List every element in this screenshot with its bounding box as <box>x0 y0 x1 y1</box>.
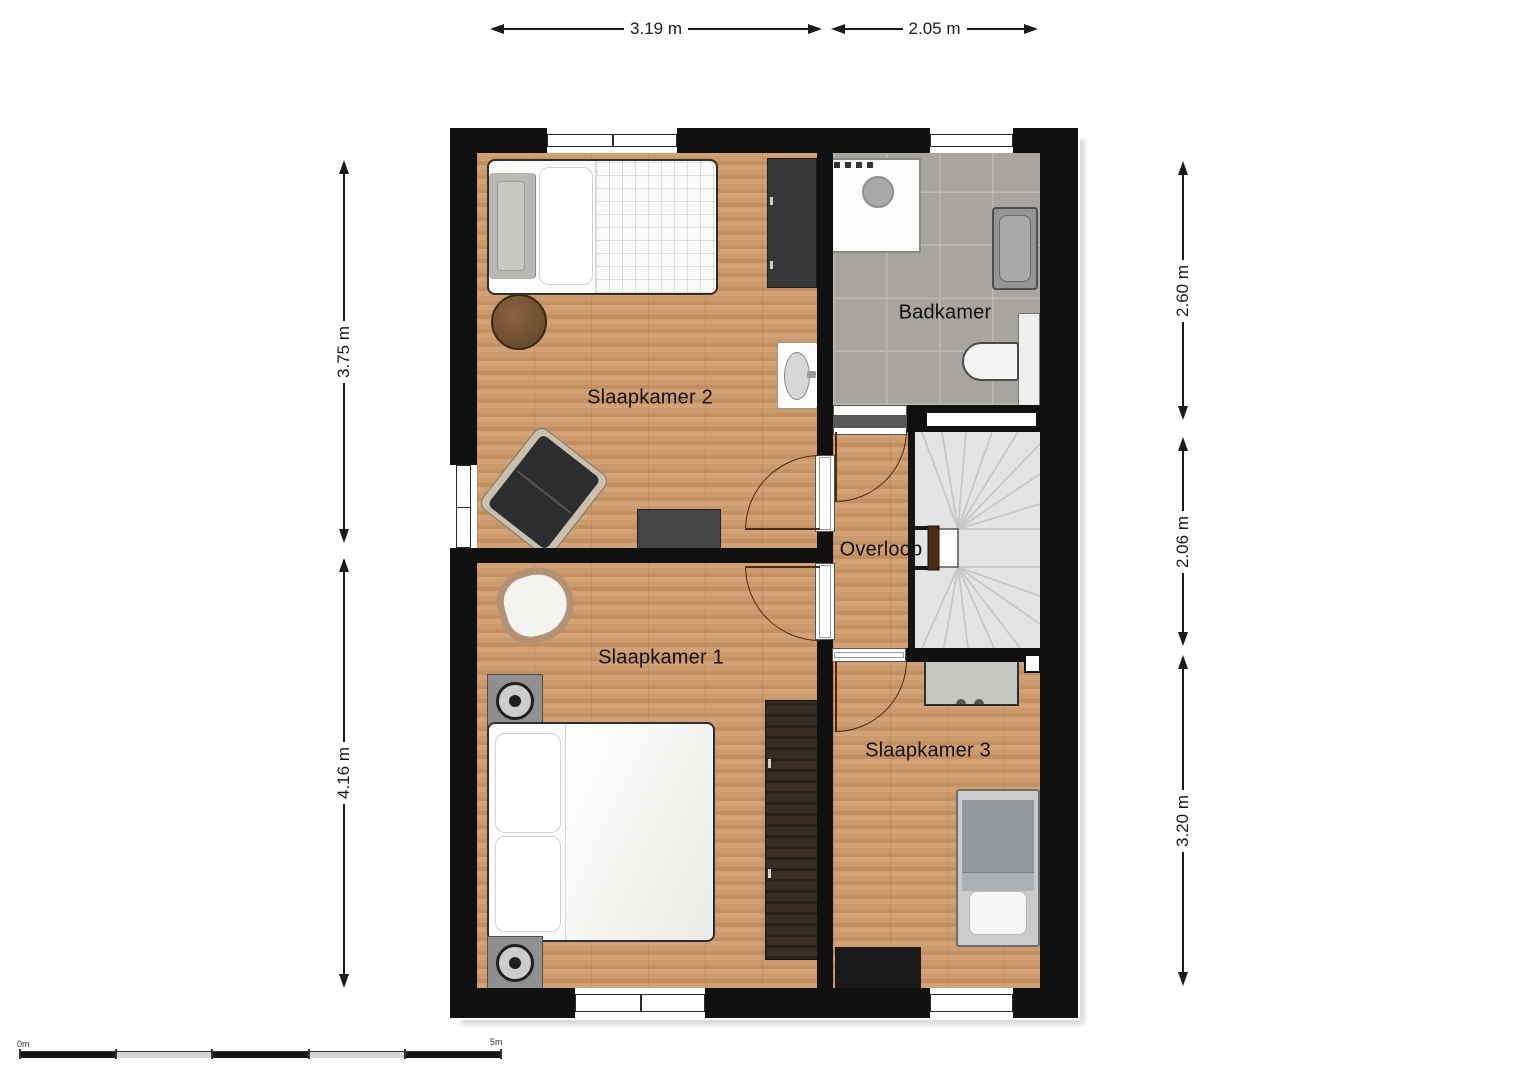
sideboard-slaapkamer2 <box>637 509 721 549</box>
dimension-value: 2.60 m <box>1173 265 1193 317</box>
scale-start-label: 0m <box>17 1039 30 1049</box>
dresser-slaapkamer3 <box>924 656 1019 706</box>
scale-segment <box>115 1052 211 1058</box>
dimension-left-lower: 4.16 m <box>335 558 353 988</box>
scale-tick <box>500 1049 502 1059</box>
door-opening-slaapkamer3 <box>832 648 906 662</box>
door-leaf-slaapkamer2 <box>745 528 820 530</box>
label-badkamer: Badkamer <box>899 302 992 325</box>
label-slaapkamer1: Slaapkamer 1 <box>598 647 724 670</box>
dimension-top-left: 3.19 m <box>490 20 822 38</box>
wardrobe-handle <box>768 869 771 878</box>
radiator <box>992 207 1038 290</box>
staircase <box>908 432 1040 648</box>
corner-niche <box>1024 654 1041 673</box>
dimension-value: 4.16 m <box>334 747 354 799</box>
door-jamb <box>819 565 831 638</box>
shower <box>828 158 921 253</box>
scale-bar <box>19 1051 501 1058</box>
door-leaf-badkamer <box>835 432 837 502</box>
nightstand-dot <box>509 695 521 707</box>
wardrobe-slaapkamer2 <box>767 158 817 288</box>
bed-duvet <box>565 724 713 940</box>
scale-segment <box>19 1052 115 1058</box>
scale-tick <box>404 1049 406 1059</box>
bed-pillow <box>969 891 1027 935</box>
wardrobe-handle <box>770 261 773 269</box>
scale-tick <box>115 1049 117 1059</box>
window-frame <box>930 134 1013 147</box>
floorplan-canvas: Slaapkamer 2 Badkamer Overloop Slaapkame… <box>0 0 1527 1080</box>
window-frame <box>930 994 1013 1012</box>
wall-slaapkamer2-slaapkamer1 <box>450 548 833 563</box>
basin-tap <box>807 371 816 378</box>
door-jamb <box>834 652 904 658</box>
scale-end-label: 5m <box>490 1037 503 1047</box>
nightstand-bottom <box>487 936 543 990</box>
single-bed-slaapkamer3 <box>956 789 1040 947</box>
dimension-value: 3.75 m <box>334 326 354 378</box>
shower-head <box>862 176 894 208</box>
dimension-value: 3.19 m <box>624 19 688 39</box>
door-jamb <box>819 457 831 530</box>
badkamer-threshold-strip <box>834 415 906 428</box>
window-mullion <box>612 134 614 147</box>
bed-pillows-bottom <box>495 836 561 932</box>
dark-cabinet-slaapkamer3 <box>835 947 921 988</box>
bench-cushion <box>497 181 525 271</box>
dimension-value: 2.05 m <box>903 19 967 39</box>
window-slaapkamer2-west <box>450 465 477 548</box>
window-mullion <box>456 507 471 509</box>
scale-segment <box>212 1052 308 1058</box>
scale-tick <box>308 1049 310 1059</box>
wardrobe-slaapkamer1 <box>765 700 818 960</box>
bed-duvet-gray <box>962 800 1034 873</box>
scale-tick <box>211 1049 213 1059</box>
wardrobe-handle <box>770 197 773 205</box>
dresser-handle <box>956 699 966 704</box>
stair-opening-niche <box>925 411 1038 428</box>
bed-pillow <box>539 167 593 285</box>
window-slaapkamer3-south <box>930 988 1013 1018</box>
bed-pillows-top <box>495 733 561 833</box>
window-badkamer-north <box>930 128 1013 153</box>
dimension-left-upper: 3.75 m <box>335 160 353 543</box>
double-bed-slaapkamer1 <box>487 722 715 942</box>
dimension-right-upper: 2.60 m <box>1174 161 1192 420</box>
dresser-handle <box>974 699 984 704</box>
dimension-value: 2.06 m <box>1173 516 1193 568</box>
bed-mid-band <box>962 873 1034 891</box>
toilet-partition <box>1018 313 1040 408</box>
dimension-right-lower: 3.20 m <box>1174 655 1192 986</box>
label-slaapkamer2: Slaapkamer 2 <box>587 387 713 410</box>
window-mullion <box>640 994 642 1012</box>
window-slaapkamer1-south <box>575 988 705 1018</box>
wardrobe-handle <box>768 759 771 768</box>
washbasin-slaapkamer2 <box>777 342 818 409</box>
scale-segment <box>405 1052 501 1058</box>
label-slaapkamer3: Slaapkamer 3 <box>865 740 991 763</box>
door-leaf-slaapkamer3 <box>835 662 837 732</box>
shower-controls <box>834 162 876 168</box>
window-slaapkamer2-north <box>547 128 677 153</box>
door-leaf-slaapkamer1 <box>745 566 820 568</box>
nightstand-dot <box>509 957 521 969</box>
nightstand-circle <box>496 944 534 982</box>
double-bed-slaapkamer2 <box>487 159 718 295</box>
dimension-value: 3.20 m <box>1173 795 1193 847</box>
toilet <box>962 342 1019 381</box>
scale-segment <box>308 1052 404 1058</box>
wall-right <box>1040 128 1078 1018</box>
label-overloop: Overloop <box>840 539 923 562</box>
nightstand-top <box>487 674 543 728</box>
dimension-top-right: 2.05 m <box>831 20 1038 38</box>
bed-duvet <box>595 161 716 293</box>
dimension-right-middle: 2.06 m <box>1174 437 1192 646</box>
nightstand-circle <box>496 682 534 720</box>
scale-tick <box>19 1049 21 1059</box>
round-side-table <box>491 294 547 350</box>
radiator-inner <box>999 215 1031 282</box>
wall-left <box>450 128 477 1018</box>
bed-bench <box>489 173 536 279</box>
